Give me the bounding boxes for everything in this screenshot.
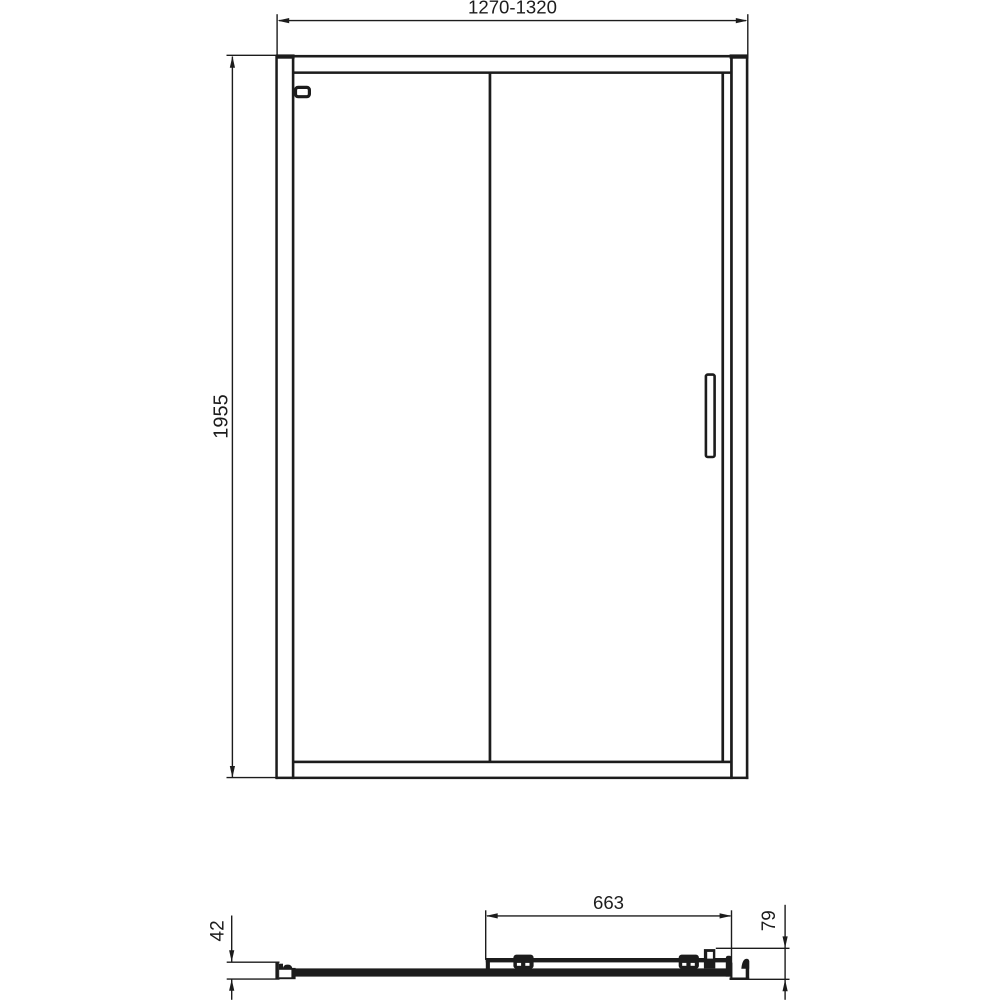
svg-text:42: 42 — [208, 920, 229, 941]
svg-text:1270-1320: 1270-1320 — [468, 0, 557, 17]
svg-text:79: 79 — [759, 910, 780, 931]
svg-text:1955: 1955 — [210, 394, 232, 439]
svg-text:663: 663 — [593, 892, 624, 913]
